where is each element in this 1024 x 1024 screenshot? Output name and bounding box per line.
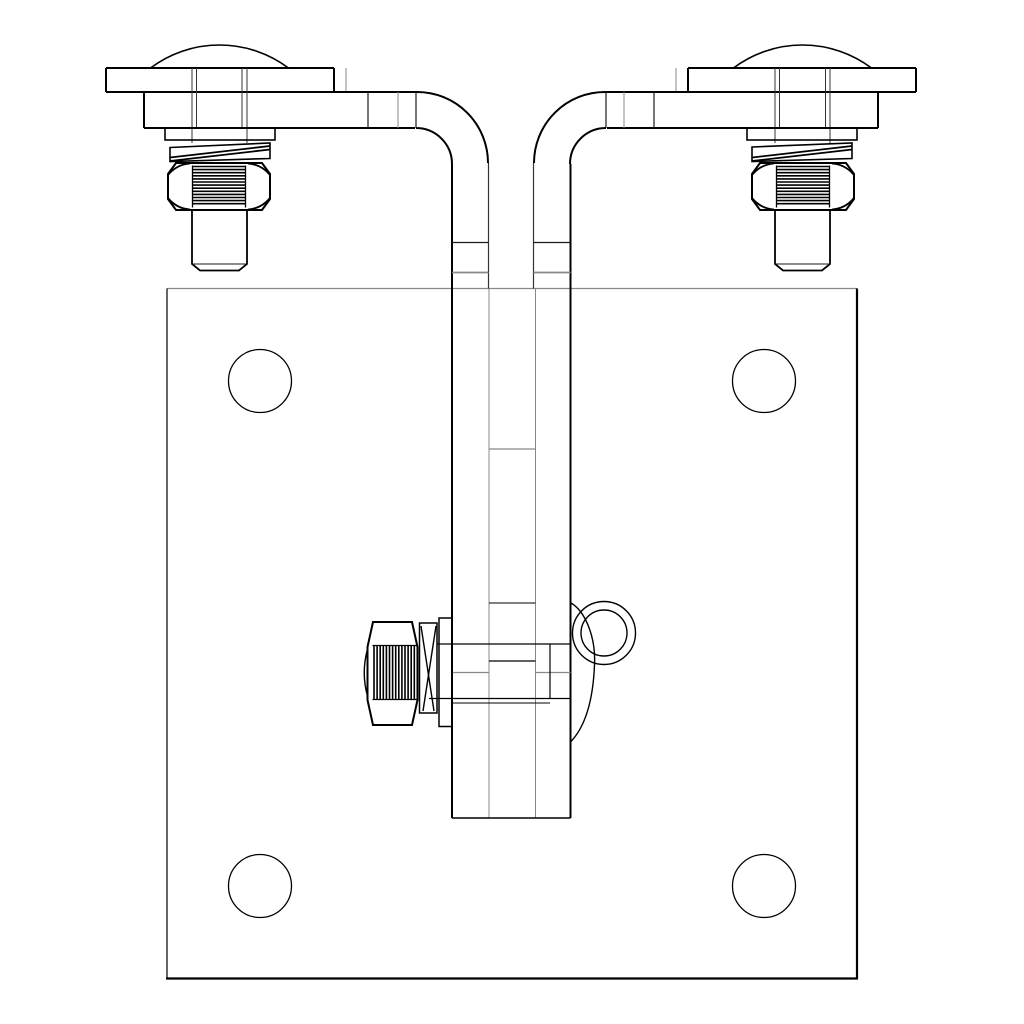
clamp-bar-left (106, 68, 346, 92)
bolt-left (151, 45, 289, 271)
bracket-assembly-drawing (0, 0, 1024, 1024)
clamp-bar-right (676, 68, 916, 92)
bolt-right (734, 45, 872, 271)
eye-ring (571, 602, 636, 743)
cad-canvas (0, 0, 1024, 1024)
center-column (429, 289, 571, 819)
mounting-holes (229, 350, 796, 918)
side-bolt (364, 618, 452, 727)
base-plate (166, 289, 858, 979)
